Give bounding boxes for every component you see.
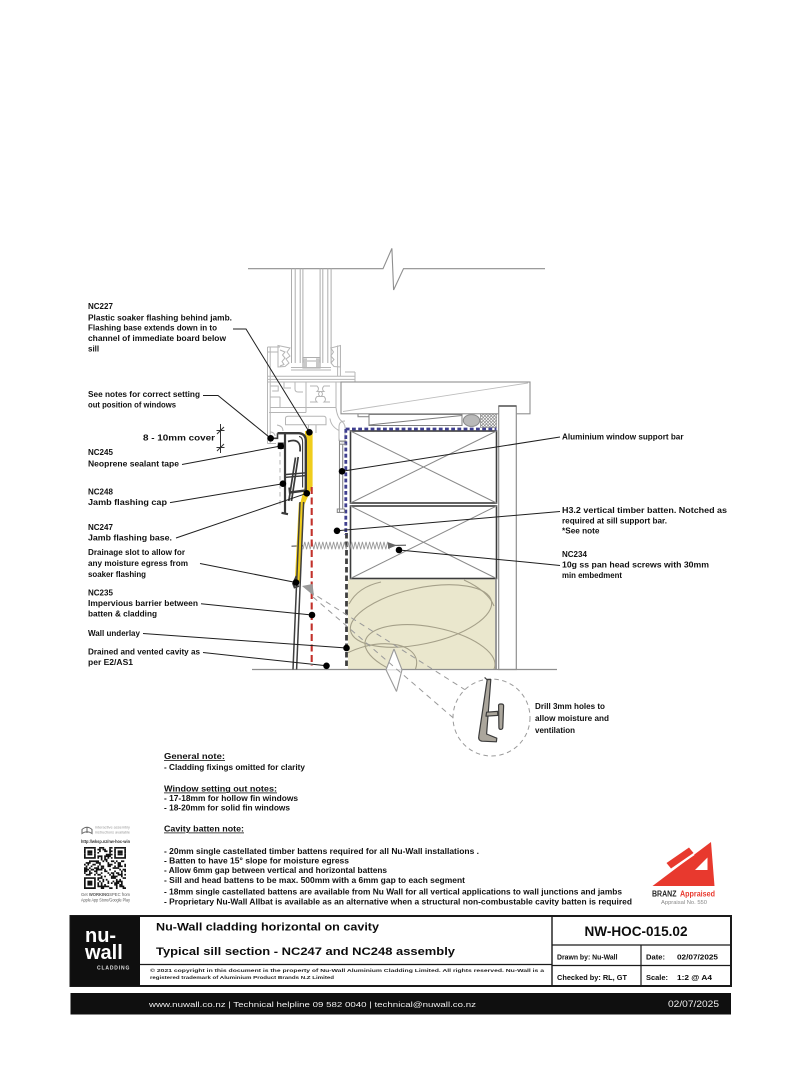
svg-text:Wall underlay: Wall underlay — [88, 629, 141, 638]
svg-text:required at sill support bar.: required at sill support bar. — [562, 517, 667, 526]
svg-text:1:2 @ A4: 1:2 @ A4 — [677, 975, 712, 982]
svg-text:Jamb flashing cap: Jamb flashing cap — [88, 498, 167, 507]
svg-text:Drainage slot to allow for: Drainage slot to allow for — [88, 548, 185, 557]
svg-text:H3.2 vertical timber batten. N: H3.2 vertical timber batten. Notched as — [562, 506, 728, 515]
svg-text:Drill 3mm holes to: Drill 3mm holes to — [535, 702, 605, 711]
svg-text:02/07/2025: 02/07/2025 — [677, 955, 718, 962]
svg-text:*See note: *See note — [562, 527, 600, 536]
svg-text:NC227: NC227 — [88, 302, 113, 311]
svg-text:Date:: Date: — [646, 955, 665, 962]
svg-text:per E2/AS1: per E2/AS1 — [88, 658, 134, 667]
svg-text:Aluminium window support bar: Aluminium window support bar — [562, 433, 684, 442]
svg-text:General note:: General note: — [164, 752, 225, 761]
svg-text:NC234: NC234 — [562, 550, 587, 559]
svg-text:- Allow 6mm gap between vertic: - Allow 6mm gap between vertical and hor… — [164, 866, 388, 875]
svg-text:10g ss pan head screws with 30: 10g ss pan head screws with 30mm — [562, 561, 709, 570]
svg-text:02/07/2025: 02/07/2025 — [668, 999, 719, 1009]
svg-text:Drained and vented cavity as: Drained and vented cavity as — [88, 648, 201, 657]
svg-text:© 2021 copyright in this docum: © 2021 copyright in this document is the… — [150, 967, 544, 974]
svg-text:Nu-Wall cladding horizontal on: Nu-Wall cladding horizontal on cavity — [156, 922, 380, 934]
svg-text:wall: wall — [84, 942, 123, 964]
svg-text:Checked by: RL, GT: Checked by: RL, GT — [557, 975, 628, 982]
svg-text:Appraised: Appraised — [680, 890, 715, 899]
svg-text:- 18mm single castellated batt: - 18mm single castellated battens are av… — [164, 888, 623, 897]
svg-text:Plastic soaker flashing behind: Plastic soaker flashing behind jamb. — [88, 314, 232, 323]
svg-text:NC247: NC247 — [88, 523, 113, 532]
svg-text:registered trademark of Alumin: registered trademark of Aluminium Produc… — [150, 975, 334, 981]
svg-text:See notes for correct setting: See notes for correct setting — [88, 390, 200, 399]
svg-text:soaker flashing: soaker flashing — [88, 570, 146, 579]
svg-text:Get WORKINGSPEC from: Get WORKINGSPEC from — [81, 892, 130, 897]
svg-text:NC235: NC235 — [88, 589, 113, 598]
svg-text:Window setting out notes:: Window setting out notes: — [164, 785, 277, 794]
svg-text:- Batten to have 15° slope for: - Batten to have 15° slope for moisture … — [164, 857, 350, 866]
svg-text:Jamb flashing base.: Jamb flashing base. — [88, 534, 172, 543]
svg-text:Appraisal No. 550: Appraisal No. 550 — [661, 900, 707, 906]
svg-text:channel of immediate board bel: channel of immediate board below — [88, 334, 227, 343]
svg-text:batten & cladding: batten & cladding — [88, 610, 157, 619]
svg-text:NW-HOC-015.02: NW-HOC-015.02 — [585, 924, 688, 940]
svg-text:- 20mm single castellated timb: - 20mm single castellated timber battens… — [164, 847, 479, 856]
svg-text:Apple App Store/Google Play: Apple App Store/Google Play — [81, 898, 131, 903]
svg-text:- 18-20mm for solid fin window: - 18-20mm for solid fin windows — [164, 804, 291, 813]
svg-text:- Cladding fixings omitted for: - Cladding fixings omitted for clarity — [164, 763, 306, 772]
svg-text:- Sill and head battens to be: - Sill and head battens to be max. 500mm… — [164, 876, 465, 885]
svg-text:- 17-18mm for hollow fin windo: - 17-18mm for hollow fin windows — [164, 794, 299, 803]
svg-text:allow moisture and: allow moisture and — [535, 714, 609, 723]
svg-text:Cavity batten note:: Cavity batten note: — [164, 825, 244, 834]
svg-text:http://wksp.nz/nw-hoc-win: http://wksp.nz/nw-hoc-win — [81, 839, 130, 844]
svg-text:sill: sill — [88, 345, 99, 354]
svg-text:Scale:: Scale: — [646, 975, 668, 982]
svg-text:- Proprietary Nu-Wall Allbat i: - Proprietary Nu-Wall Allbat is availabl… — [164, 898, 632, 907]
svg-text:8 - 10mm cover: 8 - 10mm cover — [143, 434, 215, 443]
svg-text:min embedment: min embedment — [562, 571, 622, 580]
svg-text:NC248: NC248 — [88, 488, 113, 497]
svg-text:BRANZ: BRANZ — [652, 890, 677, 899]
svg-text:any moisture egress from: any moisture egress from — [88, 559, 188, 568]
svg-text:Impervious barrier between: Impervious barrier between — [88, 599, 198, 608]
svg-text:www.nuwall.co.nz | Technic: www.nuwall.co.nz | Technical helpline 09… — [148, 1000, 477, 1009]
svg-text:CLADDING: CLADDING — [97, 966, 130, 972]
svg-text:out position of windows: out position of windows — [88, 401, 177, 410]
svg-text:ventilation: ventilation — [535, 726, 575, 735]
svg-text:Typical sill section - NC247 a: Typical sill section - NC247 and NC248 a… — [156, 946, 456, 958]
svg-text:Flashing base extends down in: Flashing base extends down in to — [88, 324, 217, 333]
svg-text:Drawn by: Nu-Wall: Drawn by: Nu-Wall — [557, 955, 618, 962]
svg-text:NC245: NC245 — [88, 448, 113, 457]
svg-text:instructions available: instructions available — [95, 830, 131, 835]
svg-text:Neoprene sealant tape: Neoprene sealant tape — [88, 460, 180, 469]
